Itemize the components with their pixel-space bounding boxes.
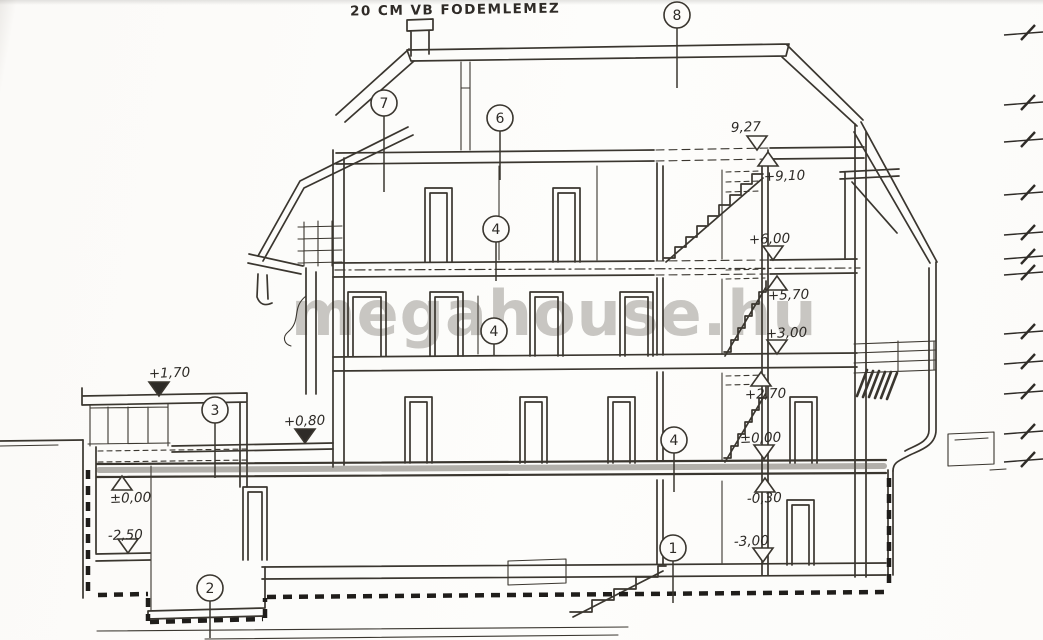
tick-line — [1004, 256, 1043, 259]
tick-line — [1004, 102, 1043, 105]
tick-line — [1004, 32, 1043, 35]
section-drawing: 9,27+9,10+6,00+5,70+3,00+2,70±0,00-0,30-… — [0, 0, 1043, 640]
tick-line — [1004, 459, 1043, 462]
bubble-number: 7 — [380, 96, 389, 112]
right-bay-bracket — [893, 262, 936, 471]
dimension-tick — [1004, 249, 1043, 264]
reference-bubble: 4 — [483, 216, 509, 281]
bubble-number: 1 — [669, 541, 678, 557]
bubble-number: 2 — [206, 581, 215, 597]
slab-plus3 — [333, 353, 857, 371]
tick-line — [1004, 192, 1043, 195]
elevation-marker: +0,80 — [284, 413, 326, 443]
left-balcony-railing — [298, 221, 342, 266]
bubble-number: 4 — [492, 222, 501, 238]
basement-steps — [570, 566, 666, 617]
dimension-tick — [1004, 354, 1043, 369]
tick-line — [1004, 361, 1043, 364]
stair-landing-dashed-2 — [726, 269, 765, 279]
level-dashdot — [335, 268, 860, 270]
level-label: -0,30 — [747, 490, 782, 507]
elevation-marker: +3,00 — [766, 325, 808, 354]
level-label: +6,00 — [749, 231, 791, 248]
left-wall-flourish — [284, 296, 306, 346]
right-terrace-step — [948, 432, 994, 466]
level-label: ±0,00 — [110, 490, 152, 507]
ground-line-left-2 — [0, 445, 58, 446]
reference-bubble: 2 — [197, 575, 223, 638]
wall-left — [333, 150, 344, 467]
stair-flight-2 — [724, 281, 766, 356]
level-label: ±0,00 — [740, 430, 782, 447]
dimension-tick — [1004, 265, 1043, 280]
reference-bubble: 1 — [660, 535, 686, 603]
level-label: +2,70 — [745, 386, 787, 403]
reference-bubble: 7 — [371, 90, 397, 192]
level-label: 9,27 — [731, 119, 762, 136]
elevation-marker: +9,10 — [758, 152, 805, 185]
bubble-number: 3 — [211, 403, 220, 419]
level-label: +0,80 — [284, 413, 326, 430]
reference-bubble: 4 — [661, 427, 687, 492]
elevation-marker: ±0,00 — [740, 430, 782, 459]
level-label: +5,70 — [768, 287, 810, 304]
elevation-marker: -3,00 — [734, 533, 773, 562]
roof-ridge — [407, 44, 789, 61]
dimension-tick — [1004, 95, 1043, 110]
left-dim-mark — [990, 469, 1006, 470]
elevation-marker: +6,00 — [749, 231, 791, 260]
tick-line — [1004, 391, 1043, 394]
dimension-tick — [1004, 185, 1043, 200]
stair-flight-attic — [664, 174, 763, 262]
dimension-tick — [1004, 324, 1043, 339]
bubble-number: 4 — [670, 433, 679, 449]
slab-plus6-dashed — [656, 260, 768, 275]
elevation-marker: -0,30 — [747, 478, 782, 507]
level-triangle — [767, 340, 787, 354]
attic-slab-dashed — [656, 148, 769, 161]
tick-line — [1004, 232, 1043, 235]
reference-bubbles: 876444321 — [197, 2, 690, 638]
reference-bubble: 4 — [481, 318, 507, 356]
tick-line — [1004, 431, 1043, 434]
bubble-number: 8 — [673, 8, 682, 24]
elevation-marker: +5,70 — [767, 276, 809, 304]
footing-block — [508, 559, 566, 585]
elevation-marker: -2,50 — [108, 527, 143, 553]
left-room-floor — [96, 553, 150, 561]
level-triangle — [763, 246, 783, 260]
tick-line — [1004, 272, 1043, 275]
stairwell-right-wall — [762, 150, 768, 575]
level-label: -2,50 — [108, 527, 143, 544]
dimension-tick — [1004, 25, 1043, 40]
stairwell-left-wall — [657, 163, 663, 564]
level-label: +9,10 — [764, 168, 806, 185]
bubble-number: 4 — [490, 324, 499, 340]
left-lower-wall — [306, 268, 316, 394]
elevation-marker: ±0,00 — [110, 476, 152, 507]
dimension-tick — [1004, 132, 1043, 147]
level-label: +1,70 — [149, 365, 191, 382]
left-wing-roof — [258, 127, 413, 261]
roof-slope-right — [782, 45, 863, 126]
slab-zero-band — [99, 466, 884, 470]
dimension-tick — [1004, 452, 1043, 467]
ground-line-left — [0, 440, 83, 441]
chimney-flue — [461, 62, 470, 150]
dimension-tick — [1004, 225, 1043, 240]
level-label: +3,00 — [766, 325, 808, 342]
level-triangle — [112, 476, 132, 490]
left-eaves-bracket — [248, 254, 303, 305]
right-window-hatch — [857, 370, 897, 399]
elevation-marker: +2,70 — [745, 372, 787, 403]
level-triangle — [754, 445, 774, 459]
tick-line — [1004, 139, 1043, 142]
level-triangle — [753, 548, 773, 562]
level-label: -3,00 — [734, 533, 769, 550]
door-frames — [243, 188, 817, 565]
elevation-marker: 9,27 — [731, 119, 767, 150]
dimension-tick — [1004, 384, 1043, 399]
elevation-marker: +1,70 — [149, 365, 191, 396]
bubble-number: 6 — [496, 111, 505, 127]
bottom-edge-lines — [97, 627, 628, 639]
terrace-slab — [172, 443, 333, 452]
attic-slab — [336, 147, 864, 164]
tick-line — [1004, 331, 1043, 334]
dimension-tick — [1004, 424, 1043, 439]
dimension-chain — [1004, 25, 1043, 467]
reference-bubble: 6 — [487, 105, 513, 180]
annex-glazing — [88, 404, 170, 446]
reference-bubble: 3 — [202, 397, 228, 478]
scan-page: megahouse.hu — [0, 0, 1043, 640]
slab-note: 20 CM VB FODEMLEMEZ — [350, 1, 560, 20]
level-triangle — [295, 429, 315, 443]
